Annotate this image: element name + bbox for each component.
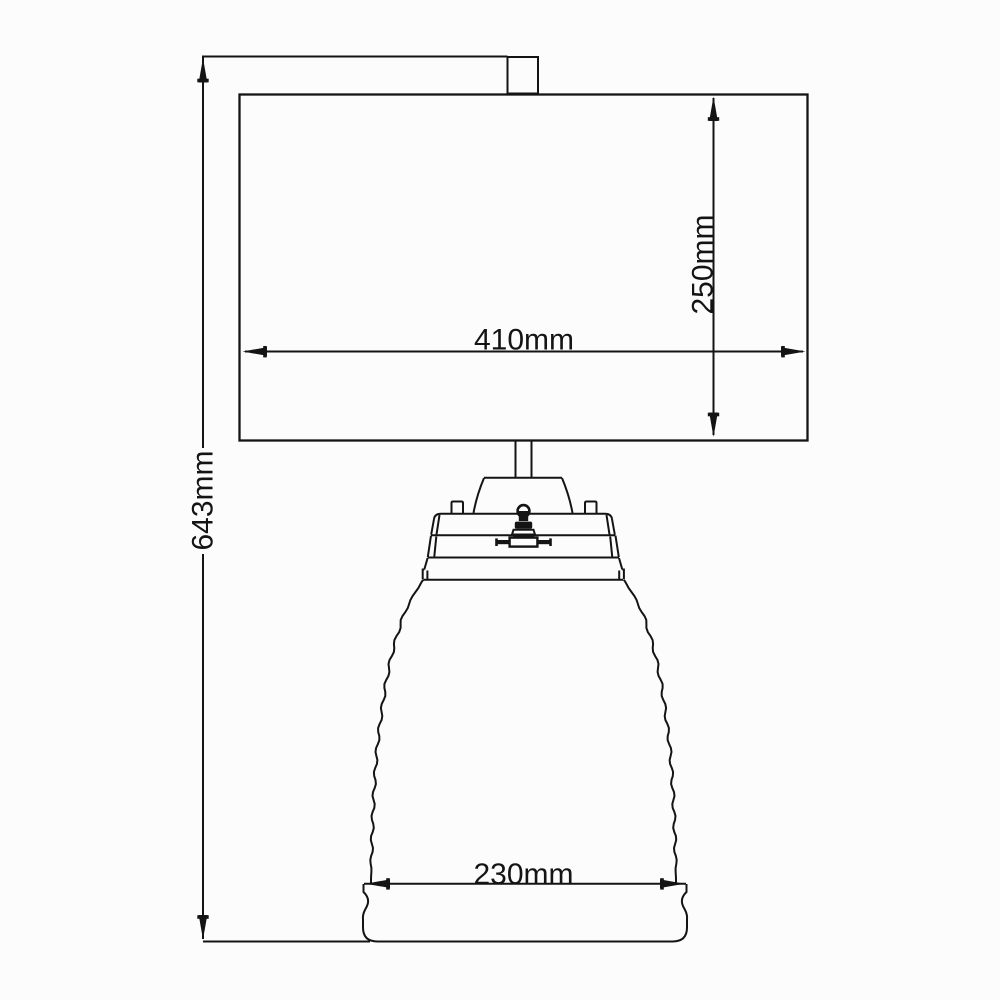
svg-text:250mm: 250mm — [687, 214, 720, 314]
svg-text:643mm: 643mm — [187, 450, 220, 550]
svg-text:410mm: 410mm — [474, 324, 574, 357]
svg-text:230mm: 230mm — [473, 858, 573, 891]
